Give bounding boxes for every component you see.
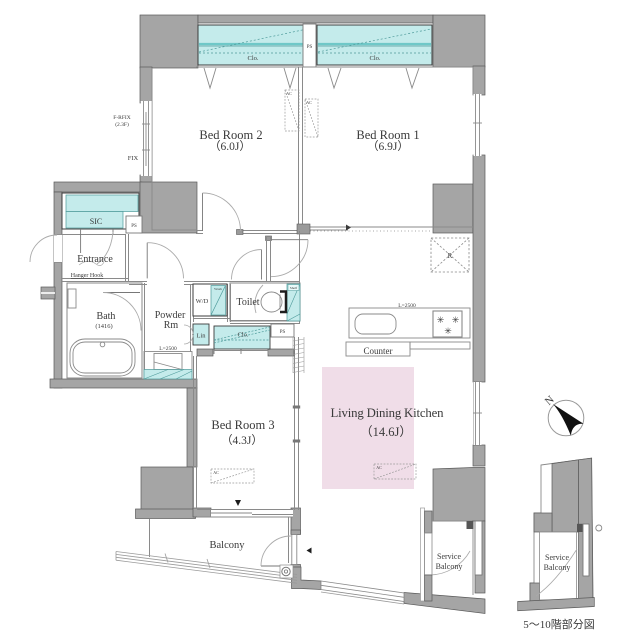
svg-text:Clo.: Clo. [369,55,380,62]
svg-text:AC: AC [213,470,219,475]
svg-text:（4.3J）: （4.3J） [221,434,263,447]
svg-text:Entrance: Entrance [77,254,113,265]
svg-text:FIX: FIX [128,155,139,162]
svg-text:Balcony: Balcony [544,563,571,572]
svg-text:✳: ✳ [452,315,460,325]
svg-text:Balcony: Balcony [436,562,463,571]
svg-text:Service: Service [437,552,461,561]
svg-text:✳: ✳ [444,326,452,336]
svg-text:AC: AC [286,91,292,96]
svg-text:(2.3F): (2.3F) [115,121,129,128]
svg-text:L=2500: L=2500 [159,346,177,352]
svg-text:Clo.: Clo. [247,55,258,62]
svg-text:（6.0J）: （6.0J） [209,140,251,153]
svg-text:(1416): (1416) [95,323,112,330]
svg-text:Service: Service [545,553,569,562]
svg-text:PS: PS [131,224,137,229]
svg-text:5～10階部分図: 5～10階部分図 [523,617,595,631]
svg-text:Bed Room 2: Bed Room 2 [199,128,262,142]
svg-text:Bed Room 1: Bed Room 1 [356,128,419,142]
svg-text:F-RFIX: F-RFIX [113,115,130,121]
svg-text:Wash: Wash [214,287,222,291]
svg-text:L=2500: L=2500 [398,303,416,309]
svg-text:R: R [448,252,453,260]
svg-text:PS: PS [307,45,313,50]
svg-text:W/D: W/D [196,298,209,305]
svg-text:（6.9J）: （6.9J） [367,140,409,153]
svg-text:Hanger Hook: Hanger Hook [71,273,104,279]
svg-text:（14.6J）: （14.6J） [360,425,412,439]
svg-text:Shelf: Shelf [290,286,298,290]
svg-text:AC: AC [306,100,312,105]
svg-text:SIC: SIC [90,217,102,226]
svg-text:Balcony: Balcony [210,540,246,551]
svg-text:AC: AC [376,465,382,470]
svg-text:Counter: Counter [364,346,393,356]
svg-text:✳: ✳ [437,315,445,325]
svg-text:Living Dining Kitchen: Living Dining Kitchen [331,406,445,420]
svg-text:Rm: Rm [164,320,179,331]
svg-text:Clo.: Clo. [237,332,248,339]
svg-text:Toilet: Toilet [236,297,259,308]
svg-text:Bed Room 3: Bed Room 3 [211,418,274,432]
svg-text:Lin: Lin [196,333,206,340]
svg-text:PS: PS [280,330,286,335]
svg-text:Bath: Bath [97,311,116,322]
